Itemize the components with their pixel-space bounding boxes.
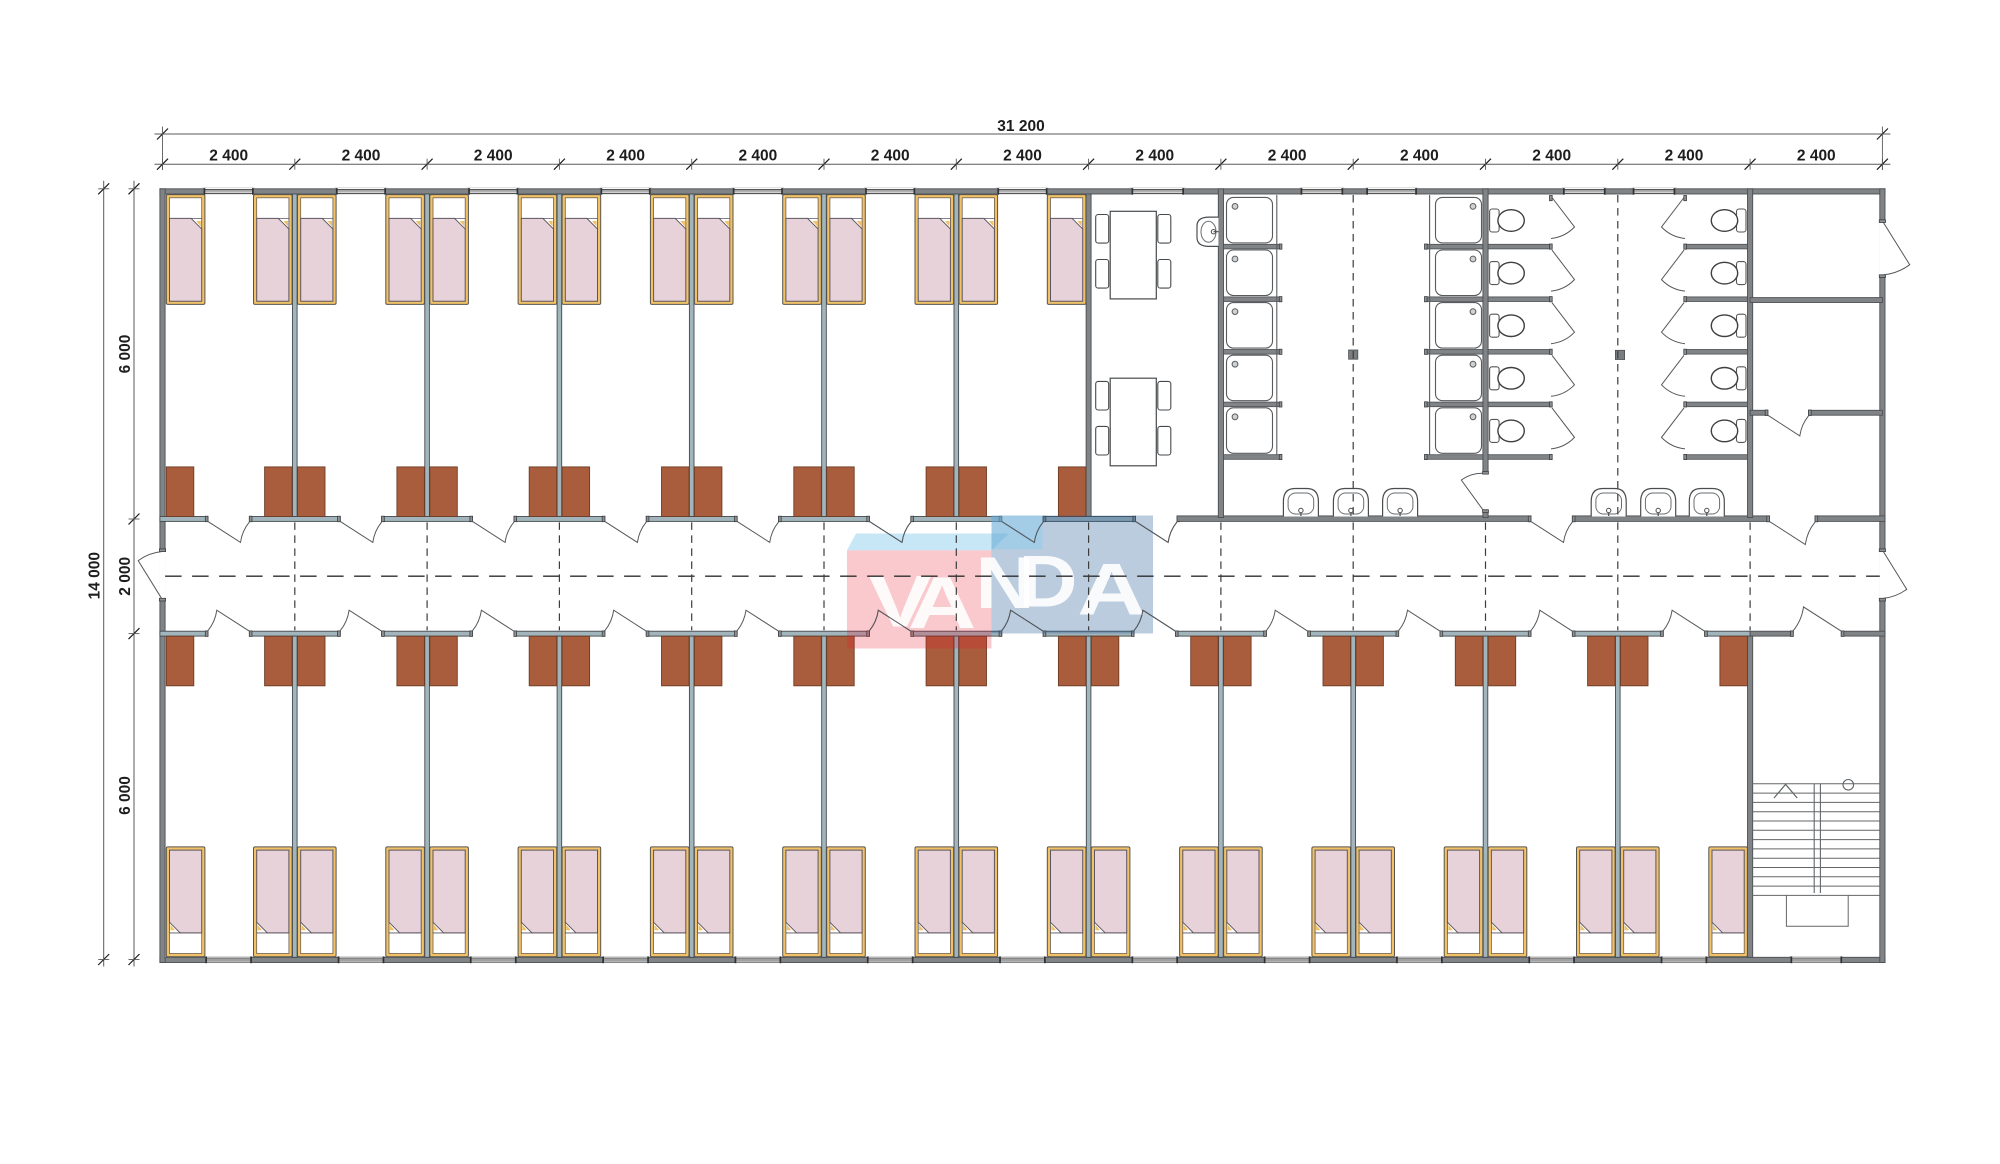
svg-text:2 400: 2 400 — [342, 148, 381, 165]
svg-text:2 000: 2 000 — [117, 557, 134, 596]
svg-text:6 000: 6 000 — [117, 335, 134, 374]
svg-text:2 400: 2 400 — [606, 148, 645, 165]
svg-text:2 400: 2 400 — [1665, 148, 1704, 165]
svg-text:2 400: 2 400 — [1003, 148, 1042, 165]
svg-text:A: A — [1077, 548, 1146, 630]
svg-text:2 400: 2 400 — [1532, 148, 1571, 165]
svg-text:14 000: 14 000 — [87, 552, 104, 599]
svg-text:2 400: 2 400 — [1135, 148, 1174, 165]
svg-text:6 000: 6 000 — [117, 776, 134, 815]
svg-text:2 400: 2 400 — [871, 148, 910, 165]
svg-text:2 400: 2 400 — [474, 148, 513, 165]
svg-text:2 400: 2 400 — [739, 148, 778, 165]
svg-text:2 400: 2 400 — [1400, 148, 1439, 165]
svg-text:2 400: 2 400 — [1797, 148, 1836, 165]
svg-text:31 200: 31 200 — [997, 118, 1044, 135]
svg-text:D: D — [1018, 542, 1077, 623]
svg-text:2 400: 2 400 — [1268, 148, 1307, 165]
svg-text:A: A — [908, 562, 977, 644]
svg-text:2 400: 2 400 — [209, 148, 248, 165]
